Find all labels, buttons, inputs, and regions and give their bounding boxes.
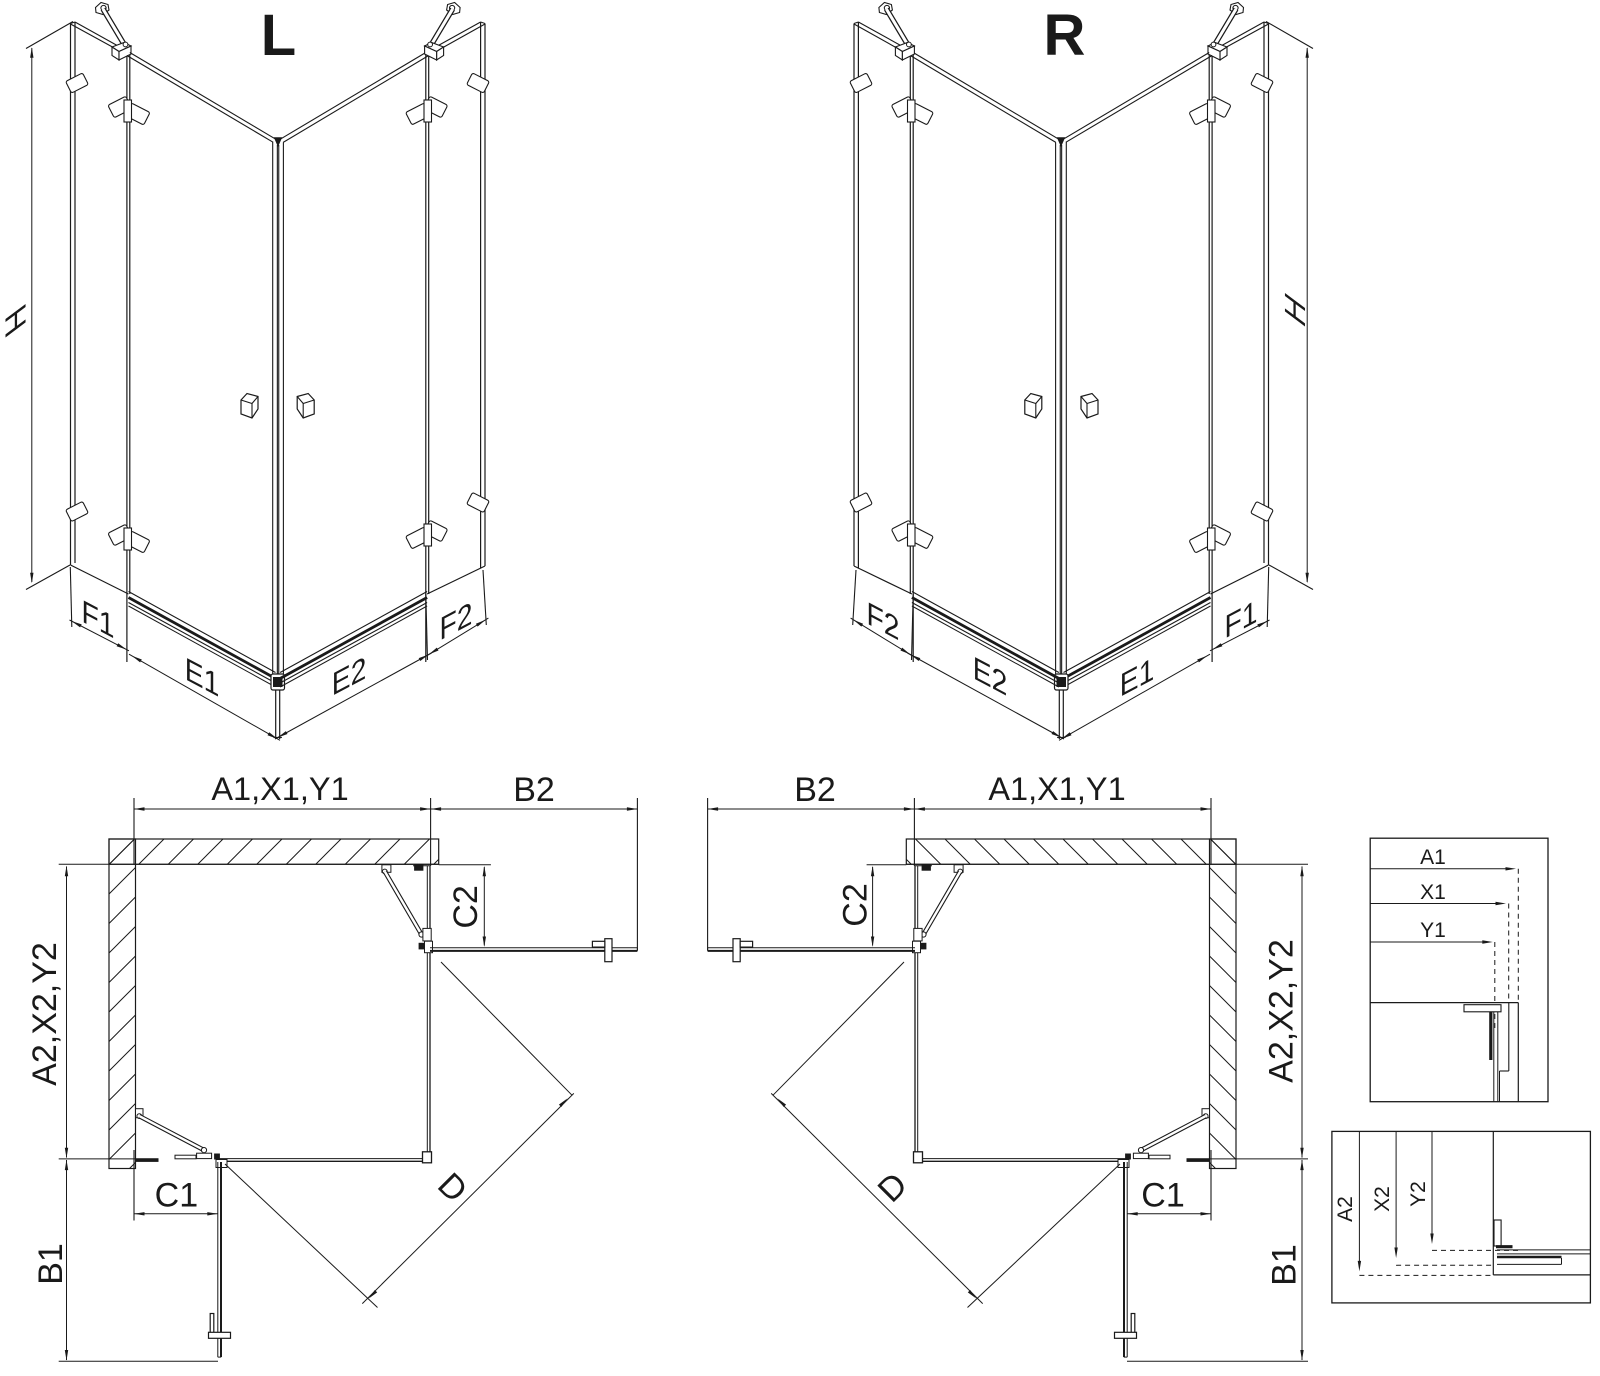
svg-text:A1: A1 [1420,846,1446,869]
svg-text:B2: B2 [794,771,836,809]
svg-text:A1,X1,Y1: A1,X1,Y1 [988,771,1125,807]
svg-text:Y1: Y1 [1420,919,1446,942]
svg-text:A2: A2 [1334,1196,1357,1222]
svg-text:Y2: Y2 [1407,1181,1430,1207]
svg-text:L: L [261,3,296,68]
svg-text:C2: C2 [447,885,485,928]
svg-text:B1: B1 [1265,1244,1303,1286]
svg-text:C2: C2 [837,883,875,926]
svg-text:A1,X1,Y1: A1,X1,Y1 [211,771,348,807]
svg-text:A2,X2,Y2: A2,X2,Y2 [1263,939,1301,1083]
svg-text:R: R [1044,3,1086,68]
svg-text:B1: B1 [32,1243,70,1285]
svg-text:C1: C1 [155,1176,198,1214]
svg-text:X2: X2 [1371,1186,1394,1212]
svg-text:B2: B2 [513,771,555,809]
svg-text:C1: C1 [1141,1176,1184,1214]
svg-text:X1: X1 [1420,881,1446,904]
svg-text:A2,X2,Y2: A2,X2,Y2 [26,942,64,1086]
